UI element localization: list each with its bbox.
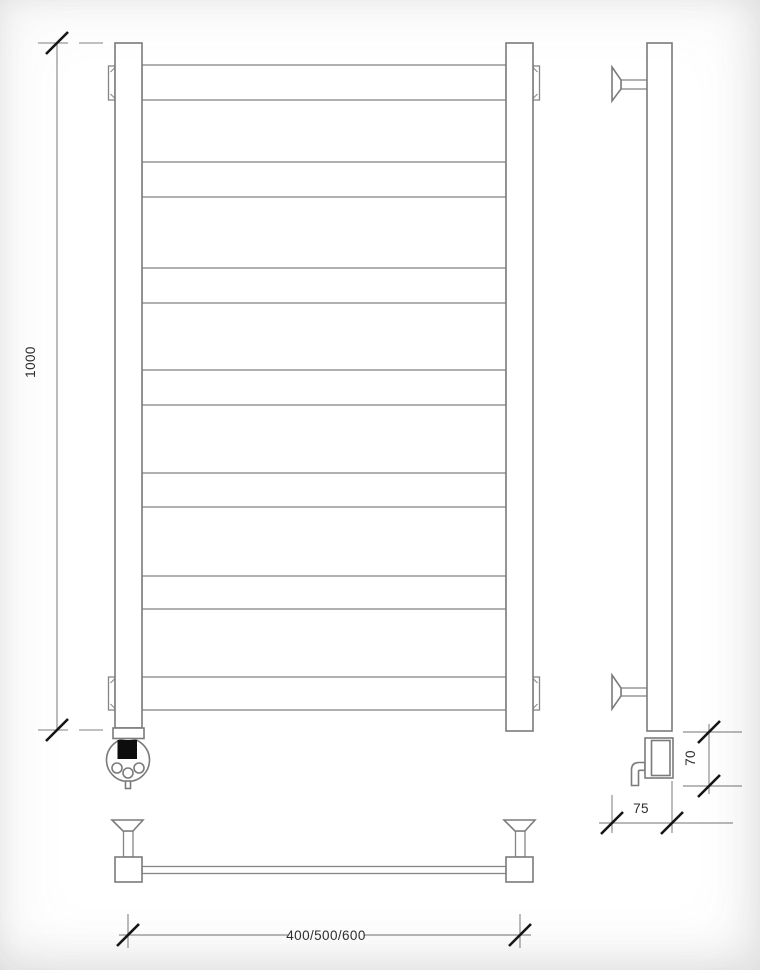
bottom-view: 400/500/600 [112, 820, 535, 948]
bracket-stem [516, 831, 526, 857]
width-dimension-label: 400/500/600 [286, 928, 365, 943]
side-view: 70 75 [599, 43, 742, 834]
side-element-box [632, 738, 674, 786]
element-height-dimension: 70 [683, 721, 742, 797]
rung [142, 65, 506, 100]
rung [142, 268, 506, 303]
side-post [647, 43, 672, 731]
width-dimension: 400/500/600 [117, 914, 531, 948]
bracket-arm [621, 80, 647, 89]
bottom-bracket-left [112, 820, 143, 857]
height-dimension: 1000 [23, 32, 103, 741]
rung [142, 473, 506, 507]
wall-depth-dimension-label: 75 [633, 801, 649, 816]
side-bracket-bottom [612, 675, 647, 709]
rung [142, 162, 506, 197]
side-bracket-top [612, 67, 647, 101]
bracket-flange [612, 67, 621, 101]
rung [142, 370, 506, 405]
bracket-stem [124, 831, 134, 857]
rung [142, 677, 506, 710]
wall-depth-dimension: 75 [599, 781, 733, 834]
element-height-dimension-label: 70 [683, 750, 698, 766]
front-rungs [142, 65, 506, 710]
bracket-flange [504, 820, 535, 831]
towel-rail-technical-drawing: 1000 70 [0, 0, 760, 970]
bottom-rung-bar [142, 867, 506, 874]
front-left-post [115, 43, 142, 728]
element-collar [113, 728, 144, 739]
bottom-left-post-section [115, 857, 142, 882]
drawing-sheet: 1000 70 [0, 0, 760, 970]
bottom-right-post-section [506, 857, 533, 882]
cable-elbow [632, 763, 646, 786]
wall-bracket-bottom-right [533, 677, 540, 710]
wall-bracket-bottom-left [109, 677, 116, 710]
front-right-post [506, 43, 533, 731]
element-plug [118, 740, 138, 759]
element-stem [126, 781, 131, 789]
bracket-arm [621, 688, 647, 696]
bottom-bracket-right [504, 820, 535, 857]
element-box-outer [645, 738, 673, 778]
front-view: 1000 [23, 32, 540, 789]
heating-element [107, 728, 150, 789]
wall-bracket-top-left [109, 66, 116, 100]
bracket-flange [112, 820, 143, 831]
rung [142, 576, 506, 609]
height-dimension-label: 1000 [23, 346, 38, 378]
wall-bracket-top-right [533, 66, 540, 100]
bracket-flange [612, 675, 621, 709]
